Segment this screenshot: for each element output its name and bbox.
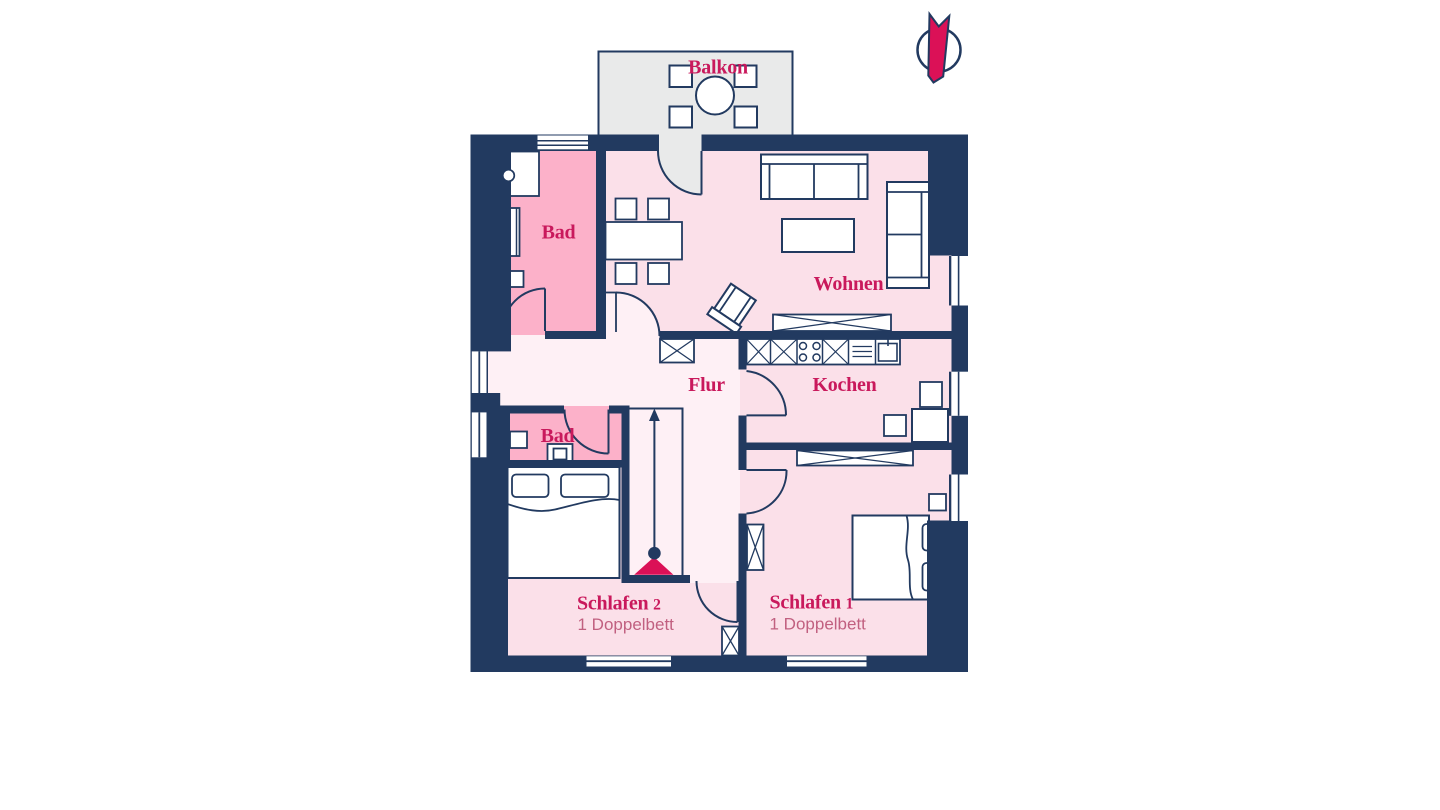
svg-text:Kochen: Kochen [812,374,876,396]
svg-text:Bad: Bad [542,222,576,244]
svg-text:Schlafen 1: Schlafen 1 [770,591,854,613]
svg-text:Balkon: Balkon [688,57,748,79]
svg-text:1 Doppelbett: 1 Doppelbett [770,615,867,634]
svg-text:Wohnen: Wohnen [814,273,884,295]
svg-text:Bad: Bad [541,425,575,447]
svg-text:Flur: Flur [688,374,725,396]
svg-text:Schlafen 2: Schlafen 2 [577,592,661,614]
svg-text:1 Doppelbett: 1 Doppelbett [578,615,675,634]
